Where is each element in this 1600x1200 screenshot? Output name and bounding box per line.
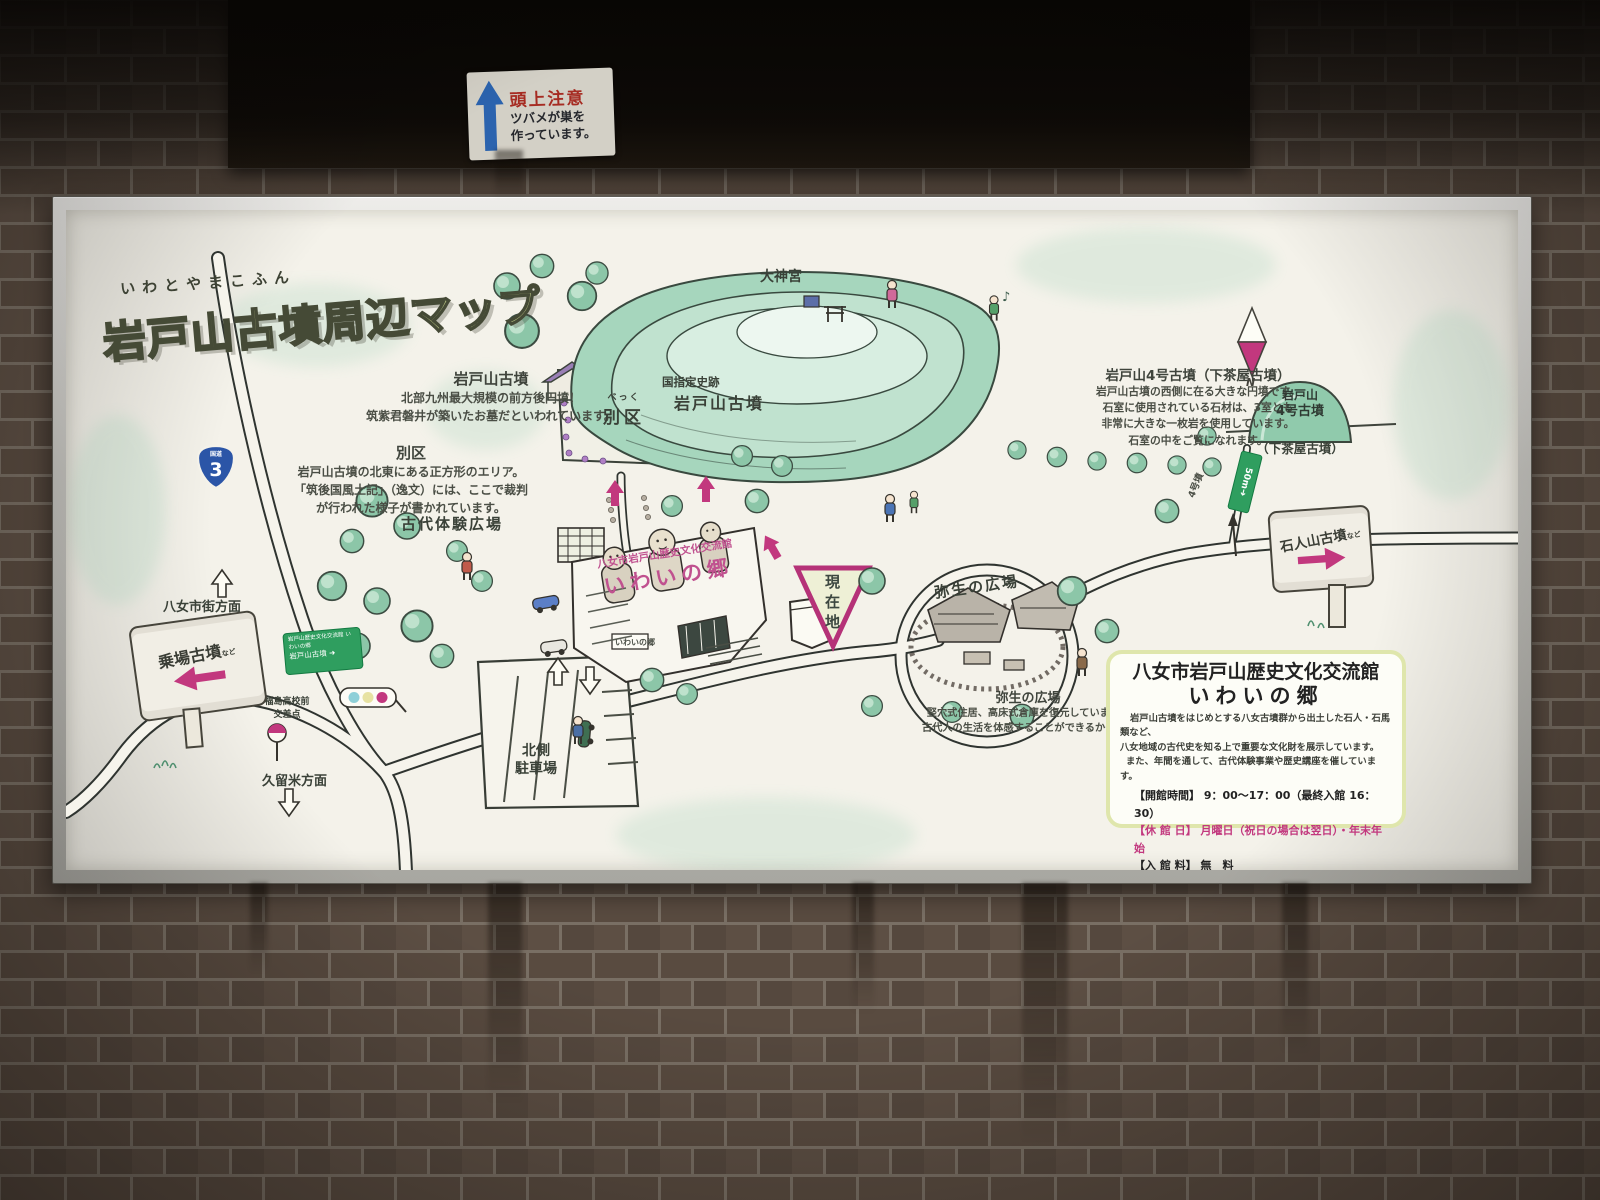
parking-line1: 北側 (494, 742, 578, 760)
intersection-signal (340, 688, 406, 712)
map-signboard: いわとやまこふん 岩戸山古墳周辺マップ 岩戸山古墳 北部九州最大規模の前方後円墳… (66, 210, 1518, 870)
route-arrow-icon (697, 476, 715, 502)
yayoi-desc-line1: 竪穴式住居、高床式倉庫を復元しています。 (922, 706, 1134, 721)
route-number: 3 (209, 459, 222, 481)
bekku-desc-line2: 「筑後国風土記」（逸文）には、ここで裁判 (276, 481, 546, 499)
noriba-kofun-sign: 乗場古墳など (128, 610, 268, 723)
info-body-line1: 岩戸山古墳をはじめとする八女古墳群から出土した石人・石馬類など、 (1120, 712, 1392, 741)
iwatoyama-mound (571, 272, 999, 482)
info-title-line2: いわいの郷 (1120, 684, 1392, 709)
fukushima-line2: 交差点 (248, 709, 326, 722)
traffic-signal-icon (268, 724, 286, 761)
route3-shield: 国道 3 (196, 444, 236, 490)
bekku-desc-title: 別区 (276, 442, 546, 463)
person-figure (1077, 649, 1087, 677)
wall-stain (488, 883, 522, 1103)
map-label-genzaichi: 現在地 (822, 574, 843, 634)
info-body-line3: また、年間を通して、古代体験事業や歴史講座を催しています。 (1120, 755, 1392, 784)
wall-stain (852, 883, 874, 1013)
map-label-bekku: べっく 別区 (594, 390, 654, 428)
map-label-iwatoyama-kofun: 岩戸山古墳 (674, 390, 764, 414)
noriba-sign-post (182, 707, 203, 748)
parking-area (478, 656, 638, 808)
info-title-line1: 八女市岩戸山歴史文化交流館 (1120, 662, 1392, 684)
bekku-description: 別区 岩戸山古墳の北東にある正方形のエリア。 「筑後国風土記」（逸文）には、ここ… (276, 442, 546, 517)
info-closed-label: 【休 館 日】 (1134, 824, 1197, 837)
up-arrow-icon (473, 78, 508, 153)
map-label-kurume-direction: 久留米方面 (262, 770, 327, 789)
wall-stain (1022, 883, 1068, 1143)
parking-line2: 駐車場 (494, 760, 578, 778)
museum-info-box: 八女市岩戸山歴史文化交流館 いわいの郷 岩戸山古墳をはじめとする八女古墳群から出… (1106, 650, 1406, 828)
green-sign-arrow-icon: ➜ (329, 648, 336, 658)
wall-stain (250, 883, 268, 973)
iwatoyama-description: 岩戸山古墳 北部九州最大規模の前方後円墳！ 筑紫君磐井が築いたお墓だといわれてい… (358, 368, 624, 425)
bekku-text: 別区 (594, 403, 654, 428)
person-figure (462, 553, 472, 581)
info-fee-value: 無 料 (1201, 859, 1234, 870)
route-kokudo-label: 国道 (210, 450, 222, 458)
photo-of-map-signboard: 頭上注意 ツバメが巣を 作っています。 (0, 0, 1600, 1200)
iwatoyama-desc-line2: 筑紫君磐井が築いたお墓だといわれています。 (358, 407, 624, 425)
info-body-line2: 八女地域の古代史を知る上で重要な文化財を展示しています。 (1120, 741, 1392, 755)
sekijin-sign-nado: など (1346, 530, 1361, 541)
info-hours-label: 【開館時間】 (1134, 789, 1200, 802)
sekijin-sign-post (1328, 584, 1346, 628)
map-label-kodai-taiken: 古代体験広場 (401, 513, 503, 534)
bekku-desc-line1: 岩戸山古墳の北東にある正方形のエリア。 (276, 463, 546, 481)
iwatoyama-desc-line1: 北部九州最大規模の前方後円墳！ (358, 389, 624, 407)
warning-line2: 作っています。 (510, 124, 609, 144)
top-shadow (0, 0, 1600, 215)
map-signboard-frame: いわとやまこふん 岩戸山古墳周辺マップ 岩戸山古墳 北部九州最大規模の前方後円墳… (52, 196, 1532, 884)
yayoi-desc-line2: 古代人の生活を体感することができるかも？！ (922, 721, 1134, 736)
map-label-daijingu: 大神宮 (760, 266, 802, 286)
iwatoyama-desc-title: 岩戸山古墳 (358, 368, 624, 389)
person-figure (885, 495, 895, 523)
bekku-furigana: べっく (594, 390, 654, 403)
route-arrow-icon (757, 531, 786, 563)
north-direction-arrow-icon (212, 570, 232, 597)
green-road-sign: 岩戸山歴史文化交流館 いわいの郷 岩戸山古墳 ➜ (282, 627, 363, 676)
yongou-desc-title: 岩戸山4号古墳（下茶屋古墳） (1080, 364, 1316, 384)
info-fee-label: 【入 館 料】 (1134, 859, 1197, 870)
green-sign-line2: 岩戸山古墳 (289, 649, 327, 661)
south-direction-arrow-icon (279, 789, 299, 816)
sign-50m-arrow-icon: ➜ (1237, 488, 1249, 498)
compass-n-label: N (1246, 376, 1255, 389)
music-note-icon: ♪ (1002, 290, 1010, 305)
noriba-sign-nado: など (221, 648, 236, 659)
yayoi-description: 弥生の広場 竪穴式住居、高床式倉庫を復元しています。 古代人の生活を体感すること… (922, 687, 1134, 737)
wall-stain (1282, 883, 1308, 1053)
sekijin-kofun-sign: 石人山古墳など (1267, 505, 1374, 594)
yongou-mound-line2: 4号古墳 (1252, 404, 1348, 421)
yayoi-desc-title: 弥生の広場 (922, 687, 1134, 706)
building-small-sign: いわいの郷 (615, 637, 655, 648)
yongou-mound-line1: 岩戸山 (1252, 388, 1348, 404)
sign-50m-text: 50m (1238, 466, 1253, 490)
person-figure (910, 491, 918, 513)
swallow-warning-sign: 頭上注意 ツバメが巣を 作っています。 (467, 67, 616, 160)
warning-title: 頭上注意 (509, 82, 608, 110)
map-label-kokushitei: 国指定史跡 (662, 374, 720, 390)
map-label-north-parking: 北側 駐車場 (494, 742, 578, 778)
yongou-mound-label: 岩戸山 4号古墳 (1252, 388, 1348, 420)
person-figure (990, 296, 999, 321)
wall-stain (495, 150, 523, 198)
